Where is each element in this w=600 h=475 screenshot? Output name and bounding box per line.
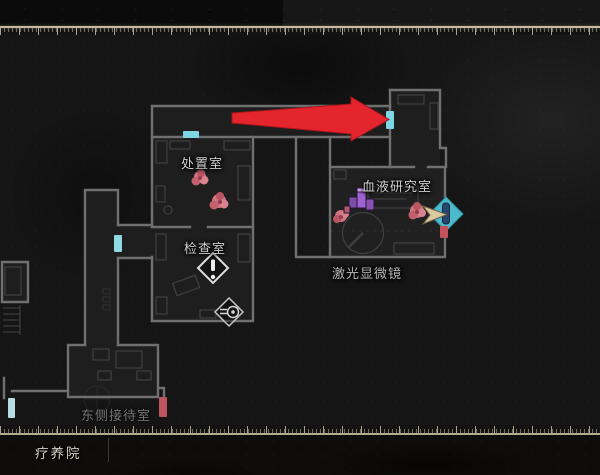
item-icon <box>344 206 350 213</box>
door-marker-pale-icon <box>8 398 15 418</box>
map-canvas[interactable] <box>0 0 600 475</box>
room-label-laser-microscope: 激光显微镜 <box>332 263 402 282</box>
top-chrome-bar <box>0 0 600 26</box>
room-label-examination: 检查室 <box>184 238 226 257</box>
passage-area <box>118 225 152 258</box>
floor-label: 疗养院 <box>35 442 82 462</box>
door-marker-red-icon <box>159 397 167 417</box>
room-label-disposal: 处置室 <box>181 153 223 172</box>
room-left-small-area <box>2 262 28 302</box>
item-icon <box>366 199 374 210</box>
ruler-top <box>0 26 600 36</box>
door-marker-cyan-icon <box>183 131 199 138</box>
bottom-chrome-bar <box>0 435 600 475</box>
room-label-east-reception: 东侧接待室 <box>81 405 151 424</box>
room-label-blood-research: 血液研究室 <box>362 176 432 195</box>
stairs-icon <box>3 305 20 335</box>
ruler-bottom <box>0 425 600 435</box>
red-tab-icon <box>440 226 448 238</box>
left-corridor-area <box>85 190 118 345</box>
door-marker-cyan-icon <box>114 235 122 252</box>
bottom-divider <box>108 438 109 462</box>
game-map-screen: 处置室 血液研究室 检查室 激光显微镜 东侧接待室 疗养院 <box>0 0 600 475</box>
